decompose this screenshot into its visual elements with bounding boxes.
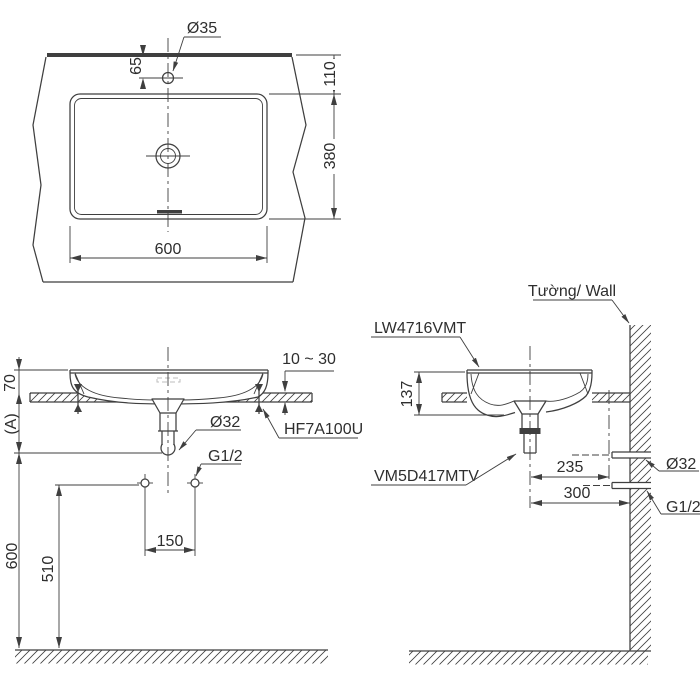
front-dim-a-label: (A) [3, 413, 20, 434]
technical-drawing-canvas: 65 Ø35 110 380 600 [0, 0, 700, 673]
front-supply-thread-callout: G1/2 [196, 448, 243, 476]
plan-dim-right-column: 110 380 [269, 55, 341, 219]
supply-points [137, 474, 203, 492]
counter-thickness-label: 10 ~ 30 [282, 351, 336, 368]
front-supply-height-label: 510 [40, 556, 57, 583]
bracket-code-label: HF7A100U [284, 421, 363, 438]
front-dim-faucet-pitch: 150 [145, 492, 195, 556]
front-drain-dia-label: Ø32 [210, 414, 240, 431]
plan-dim-width: 600 [70, 226, 267, 263]
trap-code-callout: VM5D417MTV [371, 454, 516, 485]
plan-dim-hole-offset: 65 [128, 45, 160, 89]
bracket-callout: HF7A100U [263, 409, 363, 438]
plan-width-label: 600 [155, 241, 182, 258]
basin-plan-outline [70, 94, 267, 219]
wall-drain-dia-label: Ø32 [666, 456, 696, 473]
basin-drawing-svg: 65 Ø35 110 380 600 [0, 0, 700, 673]
plan-view: 65 Ø35 110 380 600 [33, 20, 341, 282]
plan-dim-hole-dia: Ø35 [173, 20, 221, 71]
wall-supply-thread-label: G1/2 [666, 499, 700, 516]
side-drain-offset-label: 235 [557, 459, 584, 476]
wall-supply-thread-callout: G1/2 [647, 491, 700, 516]
front-dim-supply-height: 510 [40, 485, 139, 648]
front-elevation: 70 (A) 600 510 150 10 ~ 3 [2, 347, 363, 664]
side-elevation: 137 235 300 Tường/ Wall LW4716VMT VM5D41… [371, 283, 700, 665]
trap-code-label: VM5D417MTV [374, 468, 479, 485]
wall-drain-dia-callout: Ø32 [646, 456, 699, 473]
side-dim-drain-offset: 235 [531, 459, 609, 480]
front-floor [15, 650, 328, 664]
front-drain-height-label: 600 [4, 543, 21, 570]
plan-depth-label: 380 [322, 143, 339, 170]
front-supply-thread-label: G1/2 [208, 448, 243, 465]
front-drain-dia-callout: Ø32 [179, 414, 241, 450]
wall-label: Tường/ Wall [528, 283, 616, 300]
basin-code-label: LW4716VMT [374, 320, 466, 337]
side-basin-height-label: 137 [399, 381, 416, 408]
plan-hole-diameter-label: Ø35 [187, 20, 217, 37]
basin-code-callout: LW4716VMT [371, 320, 479, 367]
side-center-to-wall-label: 300 [564, 485, 591, 502]
wall-supply-stub [583, 483, 651, 489]
wall-drain-stub [572, 452, 651, 458]
front-rim-height-label: 70 [2, 374, 19, 392]
plan-hole-offset-label: 65 [128, 57, 145, 75]
wall-callout: Tường/ Wall [528, 283, 629, 323]
front-dim-counter-thickness: 10 ~ 30 [282, 351, 336, 415]
side-floor [409, 651, 651, 665]
front-faucet-pitch-label: 150 [157, 533, 184, 550]
overflow-slot [157, 210, 182, 214]
plan-edge-offset-label: 110 [322, 61, 339, 87]
